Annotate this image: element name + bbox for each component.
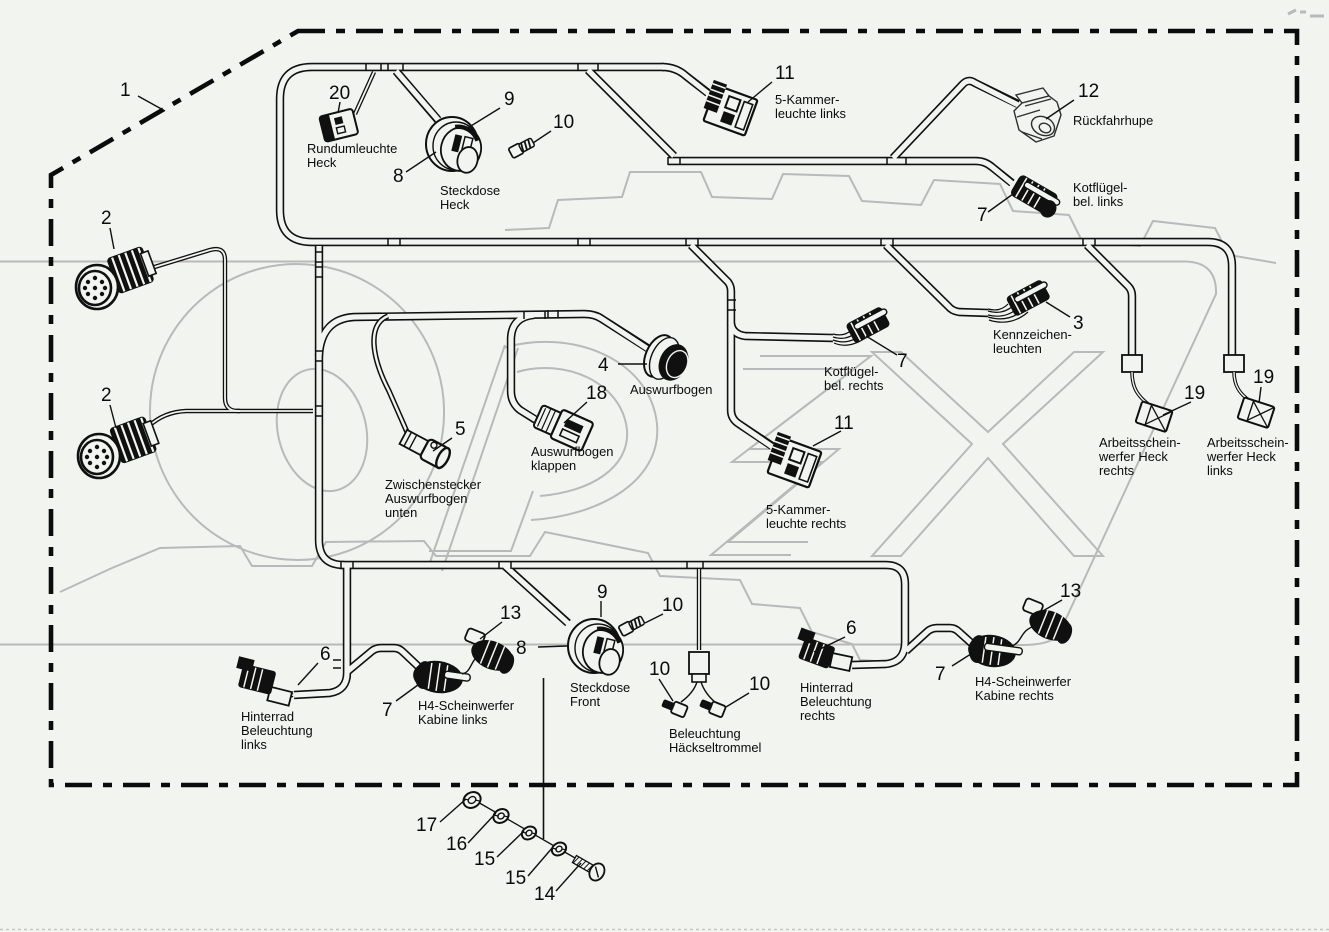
svg-text:leuchte links: leuchte links [775, 106, 846, 121]
svg-text:10: 10 [649, 659, 670, 680]
svg-text:bel. links: bel. links [1073, 194, 1123, 209]
svg-text:Hinterrad: Hinterrad [800, 680, 853, 695]
svg-text:9: 9 [597, 582, 608, 603]
svg-text:7: 7 [977, 205, 988, 226]
svg-text:Beleuchtung: Beleuchtung [800, 694, 872, 709]
svg-text:17: 17 [416, 815, 437, 836]
svg-text:7: 7 [897, 351, 908, 372]
svg-text:leuchte rechts: leuchte rechts [766, 516, 846, 531]
svg-text:19: 19 [1253, 367, 1274, 388]
svg-text:3: 3 [1073, 313, 1084, 334]
svg-text:6: 6 [320, 644, 331, 665]
svg-text:Heck: Heck [440, 197, 470, 212]
svg-text:H4-Scheinwerfer: H4-Scheinwerfer [975, 674, 1072, 689]
svg-text:Arbeitsschein-: Arbeitsschein- [1099, 435, 1181, 450]
svg-text:Kotflügel-: Kotflügel- [824, 364, 878, 379]
svg-text:10: 10 [553, 112, 574, 133]
svg-text:2: 2 [101, 385, 112, 406]
svg-text:Zwischenstecker: Zwischenstecker [385, 477, 482, 492]
svg-text:Front: Front [570, 694, 601, 709]
svg-text:9: 9 [504, 89, 515, 110]
svg-text:rechts: rechts [1099, 463, 1134, 478]
svg-text:12: 12 [1078, 81, 1099, 102]
svg-text:13: 13 [500, 603, 521, 624]
svg-text:Beleuchtung: Beleuchtung [241, 723, 313, 738]
svg-text:links: links [241, 737, 267, 752]
svg-text:Steckdose: Steckdose [440, 183, 500, 198]
svg-text:Kabine rechts: Kabine rechts [975, 688, 1054, 703]
svg-text:Rückfahrhupe: Rückfahrhupe [1073, 113, 1153, 128]
svg-text:Heck: Heck [307, 155, 337, 170]
svg-text:Rundumleuchte: Rundumleuchte [307, 141, 397, 156]
svg-text:19: 19 [1184, 383, 1205, 404]
svg-text:werfer Heck: werfer Heck [1098, 449, 1168, 464]
svg-text:7: 7 [382, 700, 393, 721]
svg-text:6: 6 [846, 618, 857, 639]
svg-text:16: 16 [446, 834, 467, 855]
svg-text:18: 18 [586, 383, 607, 404]
svg-text:Arbeitsschein-: Arbeitsschein- [1207, 435, 1289, 450]
svg-text:rechts: rechts [800, 708, 835, 723]
svg-text:Steckdose: Steckdose [570, 680, 630, 695]
svg-text:5-Kammer-: 5-Kammer- [766, 502, 830, 517]
svg-text:Beleuchtung: Beleuchtung [669, 726, 741, 741]
svg-text:11: 11 [775, 63, 795, 84]
svg-text:Auswurfbogen: Auswurfbogen [385, 491, 467, 506]
svg-text:unten: unten [385, 505, 417, 520]
svg-text:5-Kammer-: 5-Kammer- [775, 92, 839, 107]
svg-text:bel. rechts: bel. rechts [824, 378, 883, 393]
svg-text:8: 8 [393, 166, 404, 187]
svg-text:8: 8 [516, 638, 527, 659]
svg-text:leuchten: leuchten [993, 341, 1042, 356]
svg-text:10: 10 [662, 595, 683, 616]
svg-text:werfer Heck: werfer Heck [1206, 449, 1276, 464]
svg-text:4: 4 [598, 355, 609, 376]
svg-text:Hinterrad: Hinterrad [241, 709, 294, 724]
svg-text:Kabine links: Kabine links [418, 712, 488, 727]
svg-text:5: 5 [455, 419, 466, 440]
svg-text:2: 2 [101, 208, 112, 229]
svg-text:14: 14 [534, 884, 556, 905]
svg-text:11: 11 [834, 413, 854, 434]
svg-text:links: links [1207, 463, 1233, 478]
svg-text:H4-Scheinwerfer: H4-Scheinwerfer [418, 698, 515, 713]
svg-text:15: 15 [474, 849, 495, 870]
svg-text:13: 13 [1060, 581, 1081, 602]
svg-text:20: 20 [329, 83, 350, 104]
svg-text:7: 7 [935, 664, 946, 685]
svg-text:Kennzeichen-: Kennzeichen- [993, 327, 1072, 342]
svg-text:1: 1 [120, 80, 131, 101]
svg-text:Kotflügel-: Kotflügel- [1073, 180, 1127, 195]
svg-text:klappen: klappen [531, 458, 576, 473]
svg-text:10: 10 [749, 674, 770, 695]
svg-text:Auswurfbogen: Auswurfbogen [531, 444, 613, 459]
svg-text:Auswurfbogen: Auswurfbogen [630, 382, 712, 397]
svg-text:15: 15 [505, 868, 526, 889]
svg-text:Häckseltrommel: Häckseltrommel [669, 740, 761, 755]
